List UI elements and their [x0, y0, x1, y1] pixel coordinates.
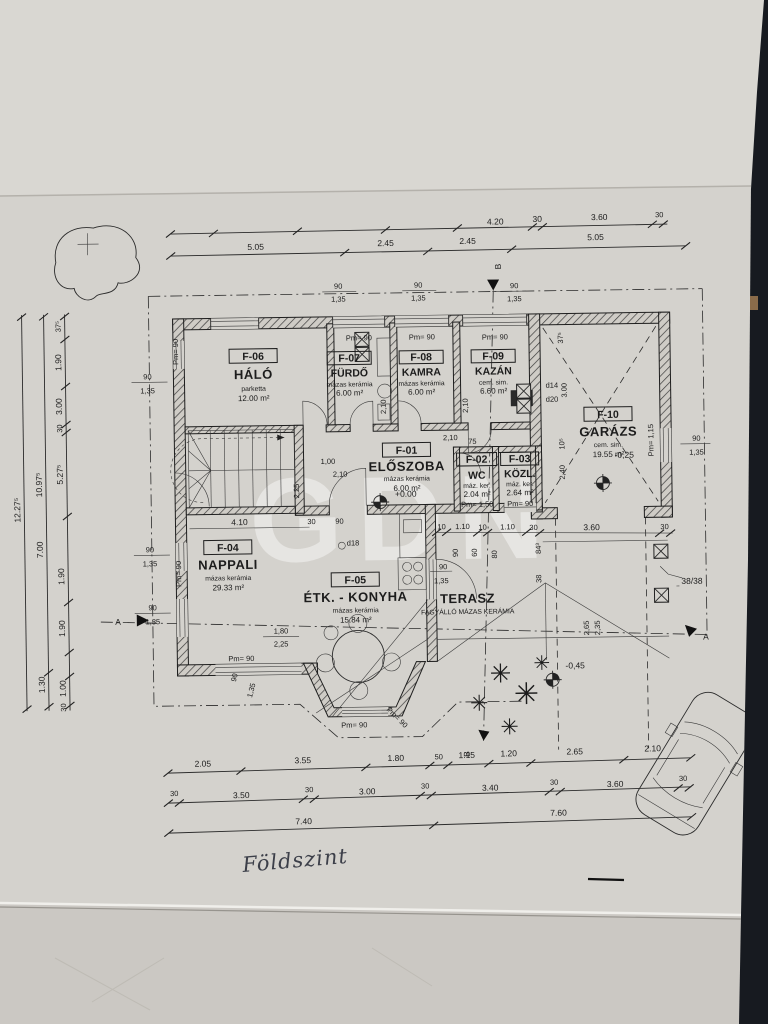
dim-text: 30	[421, 781, 429, 790]
dim-text: 10	[478, 523, 486, 532]
dim-text: 1.10	[455, 522, 470, 531]
dim-text: 90	[335, 517, 343, 526]
ink-mark	[588, 879, 624, 880]
bush-icon: ✳	[500, 714, 519, 739]
dim-text: 4.20	[487, 216, 504, 226]
dim-text: 38	[534, 575, 543, 583]
dim-text: 1.80	[387, 753, 404, 763]
room-name: HÁLÓ	[234, 367, 273, 383]
sill-height-label: Pm= 90	[174, 561, 183, 587]
dim-text: 30	[55, 424, 64, 432]
sill-height-label: Pm= 90	[341, 720, 367, 729]
room-area: 6.60 m²	[480, 386, 508, 395]
dim-text: 30	[170, 789, 178, 798]
dim-text: 1,35	[331, 295, 346, 304]
dim-text: 1.00	[58, 680, 68, 697]
room-name: NAPPALI	[198, 557, 258, 573]
dim-text: 5.05	[587, 232, 604, 242]
dim-text: d20	[546, 395, 559, 404]
dim-text: 1.15	[458, 750, 475, 760]
dim-text: 90	[143, 372, 151, 381]
dim-text: 7.60	[550, 808, 567, 818]
dim-text: 5.05	[247, 242, 264, 252]
room-finish: mázas kerámia	[384, 475, 430, 483]
sill-height-label: Pm= 90	[346, 333, 372, 342]
room-name: FÜRDŐ	[331, 366, 369, 380]
dim-text: 1.90	[56, 568, 66, 585]
dim-text: 3.60	[583, 522, 600, 532]
dim-text: 30	[679, 774, 687, 783]
top-paper-sheet	[0, 0, 764, 196]
bush-icon: ✳	[489, 658, 511, 688]
room-name: KAZÁN	[475, 364, 512, 378]
sill-height-label: Pm= 1,50	[461, 500, 493, 509]
room-id: F-09	[482, 350, 504, 362]
bush-icon: ✳	[470, 691, 489, 716]
dim-text: 12.27⁵	[12, 498, 22, 523]
dim-text: 2.45	[377, 238, 394, 248]
dim-text: 90	[451, 549, 460, 557]
dim-text: 2.45	[459, 236, 476, 246]
dim-text: 2,35	[593, 620, 602, 635]
room-area: 2.04 m²	[463, 490, 491, 499]
sill-height-label: Pm= 1,15	[646, 424, 655, 456]
dim-text: 30	[59, 703, 68, 711]
zone-name: TERASZ	[440, 591, 495, 607]
dim-text: 3.00	[54, 398, 64, 415]
room-id: F-02	[466, 454, 488, 466]
dim-text: 10.97⁵	[34, 472, 44, 497]
room-name: GARÁZS	[579, 424, 637, 440]
dim-text: 37⁵	[54, 321, 63, 333]
dim-text: 3.60	[607, 779, 624, 789]
room-id: F-05	[344, 574, 366, 586]
dim-text: d14	[546, 381, 559, 390]
dim-text: 30	[307, 517, 315, 526]
pillar-size-note: 38/38	[681, 576, 703, 586]
room-area: 6.00 m²	[393, 484, 421, 493]
dim-text: 2,10	[461, 398, 470, 413]
dim-text: 1,35	[689, 448, 704, 457]
sill-height-label: Pm= 90	[482, 332, 508, 341]
dim-text: d18	[347, 538, 360, 547]
dim-text: 1.30	[37, 676, 47, 693]
dim-text: 90	[439, 562, 447, 571]
dim-text: 84³	[534, 543, 543, 554]
room-area: 19.55 m²	[593, 450, 625, 459]
dim-text: 90	[148, 603, 156, 612]
dim-text: 1.10	[500, 522, 515, 531]
dim-text: 1,35	[143, 559, 158, 568]
dim-text: 10	[437, 522, 445, 531]
sill-height-label: Pm= 90	[409, 332, 435, 341]
dim-text: 2,10	[379, 399, 388, 414]
dim-text: 2.65	[566, 746, 583, 756]
room-id: F-03	[509, 453, 531, 465]
dim-text: 2,25	[274, 639, 289, 648]
dim-text: 2,65	[582, 621, 591, 636]
room-area: 15.84 m²	[340, 615, 372, 624]
room-finish: cem. sim.	[594, 442, 623, 449]
dim-text: 1,35	[140, 386, 155, 395]
dim-text: 2,40	[558, 465, 567, 480]
dim-text: 10⁵	[557, 438, 566, 450]
dim-text: 30	[305, 785, 313, 794]
room-name: ELŐSZOBA	[368, 458, 445, 474]
sill-height-label: Pm= 90	[507, 499, 533, 508]
bottom-paper-sheet	[0, 903, 741, 1024]
dim-text: 90	[414, 281, 422, 290]
dim-text: 1,35	[434, 576, 449, 585]
room-finish: mázas kerámia	[205, 575, 251, 583]
room-finish: mázas kerámia	[333, 607, 379, 615]
dim-text: 50	[435, 752, 443, 761]
dim-text: 1,80	[274, 626, 289, 635]
section-b-label: B	[493, 263, 503, 269]
dim-text: 90	[146, 545, 154, 554]
room-id: F-10	[597, 409, 619, 421]
room-name: WC	[468, 470, 486, 482]
bush-icon: ✳	[514, 678, 540, 711]
dim-text: 1.90	[57, 620, 67, 637]
level-yard: -0,45	[565, 660, 585, 670]
dim-text: 2,25	[292, 484, 301, 499]
room-id: F-06	[242, 351, 264, 363]
room-finish: parketta	[241, 386, 266, 393]
dim-text: 1.90	[53, 354, 63, 371]
dim-text: 80	[490, 550, 499, 558]
dim-text: 5.27⁵	[55, 464, 65, 484]
dim-text: 3.50	[233, 790, 250, 800]
dim-text: 3.40	[482, 783, 499, 793]
sill-height-label: Pm= 90	[228, 654, 254, 663]
floor-plan-photo: GDN A A B B	[0, 0, 768, 1024]
sill-height-label: Pm= 90	[171, 339, 180, 365]
dim-text: 3.00	[359, 786, 376, 796]
dim-text: 30	[529, 523, 537, 532]
bush-icon: ✳	[533, 653, 550, 675]
dim-text: 90	[692, 434, 700, 443]
dim-text: 90	[334, 282, 342, 291]
room-area: 6.00 m²	[408, 387, 436, 396]
dim-text: 2,10	[333, 470, 348, 479]
dim-text: 1,35	[507, 294, 522, 303]
room-name: KÖZL.	[504, 467, 536, 480]
dim-text: 30	[532, 214, 542, 224]
room-id: F-01	[396, 445, 418, 457]
dim-text: 30	[655, 210, 663, 219]
room-name: ÉTK. - KONYHA	[303, 589, 407, 605]
room-area: 29.33 m²	[213, 583, 245, 592]
dim-text: 2.10	[644, 743, 661, 753]
dim-text: 3.00	[560, 383, 569, 398]
dim-text: 7.00	[35, 541, 45, 558]
photo-of-floor-plan: { "plan": { "watermark": "GDN", "handwri…	[0, 0, 768, 1024]
dim-text: 1,00	[321, 457, 336, 466]
dim-text: 30	[550, 778, 558, 787]
room-id: F-08	[410, 351, 432, 363]
dim-text: 37⁵	[556, 332, 565, 344]
room-area: 2.64 m²	[506, 488, 534, 497]
dim-text: 1,35	[145, 617, 160, 626]
dim-text: 7.40	[295, 816, 312, 826]
dim-text: 75	[468, 437, 476, 446]
dim-text: 60	[470, 548, 479, 556]
room-id: F-07	[338, 352, 360, 364]
room-area: 6.00 m²	[336, 388, 364, 397]
room-name: KAMRA	[402, 366, 442, 379]
section-a-label: A	[703, 632, 709, 642]
dim-text: 90	[510, 281, 518, 290]
section-a-label: A	[115, 617, 121, 627]
dim-text: 2,10	[443, 433, 458, 442]
background-sliver	[750, 296, 758, 310]
dim-text: 1.20	[500, 748, 517, 758]
dim-text: 2.05	[194, 759, 211, 769]
dim-text: 3.55	[294, 755, 311, 765]
dim-text: 30	[660, 522, 668, 531]
room-area: 12.00 m²	[238, 394, 270, 403]
dim-text: 4.10	[231, 517, 248, 527]
dim-text: 1,35	[411, 293, 426, 302]
room-id: F-04	[217, 542, 239, 554]
dim-text: 3.60	[591, 212, 608, 222]
